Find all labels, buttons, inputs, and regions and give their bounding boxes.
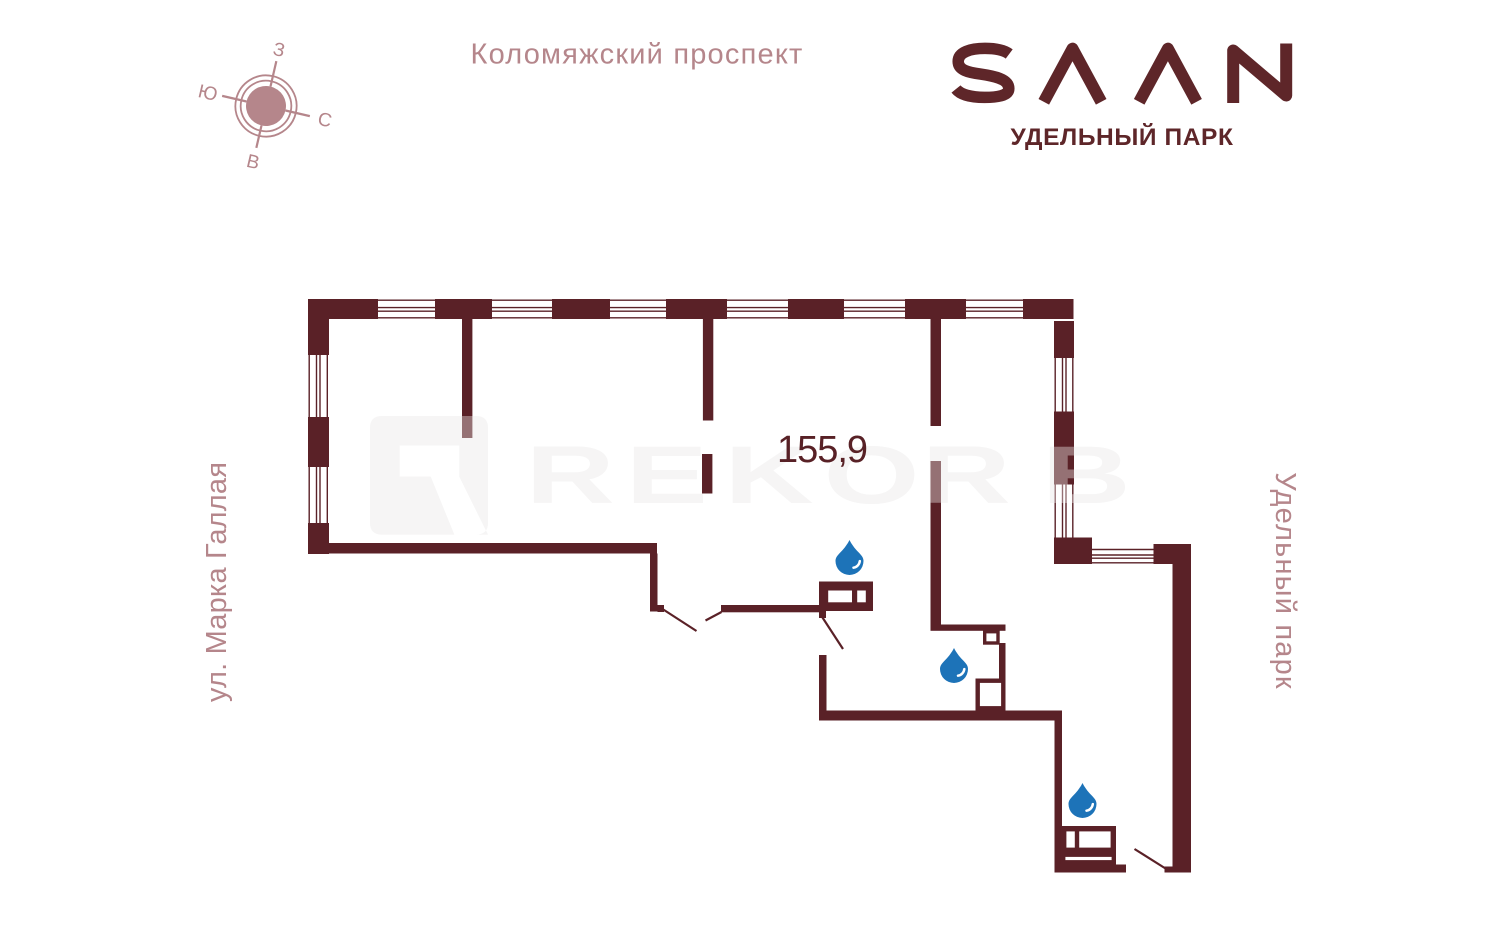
svg-text:В: В <box>244 151 261 174</box>
svg-text:УДЕЛЬНЫЙ ПАРК: УДЕЛЬНЫЙ ПАРК <box>1010 123 1233 151</box>
svg-text:З: З <box>271 39 287 62</box>
svg-text:Коломяжский проспект: Коломяжский проспект <box>470 39 803 71</box>
svg-text:ул. Марка Галлая: ул. Марка Галлая <box>201 462 233 702</box>
svg-text:Удельный парк: Удельный парк <box>1269 472 1301 690</box>
svg-text:155,9: 155,9 <box>777 429 867 471</box>
svg-text:С: С <box>316 109 334 133</box>
svg-text:Ю: Ю <box>196 81 219 106</box>
